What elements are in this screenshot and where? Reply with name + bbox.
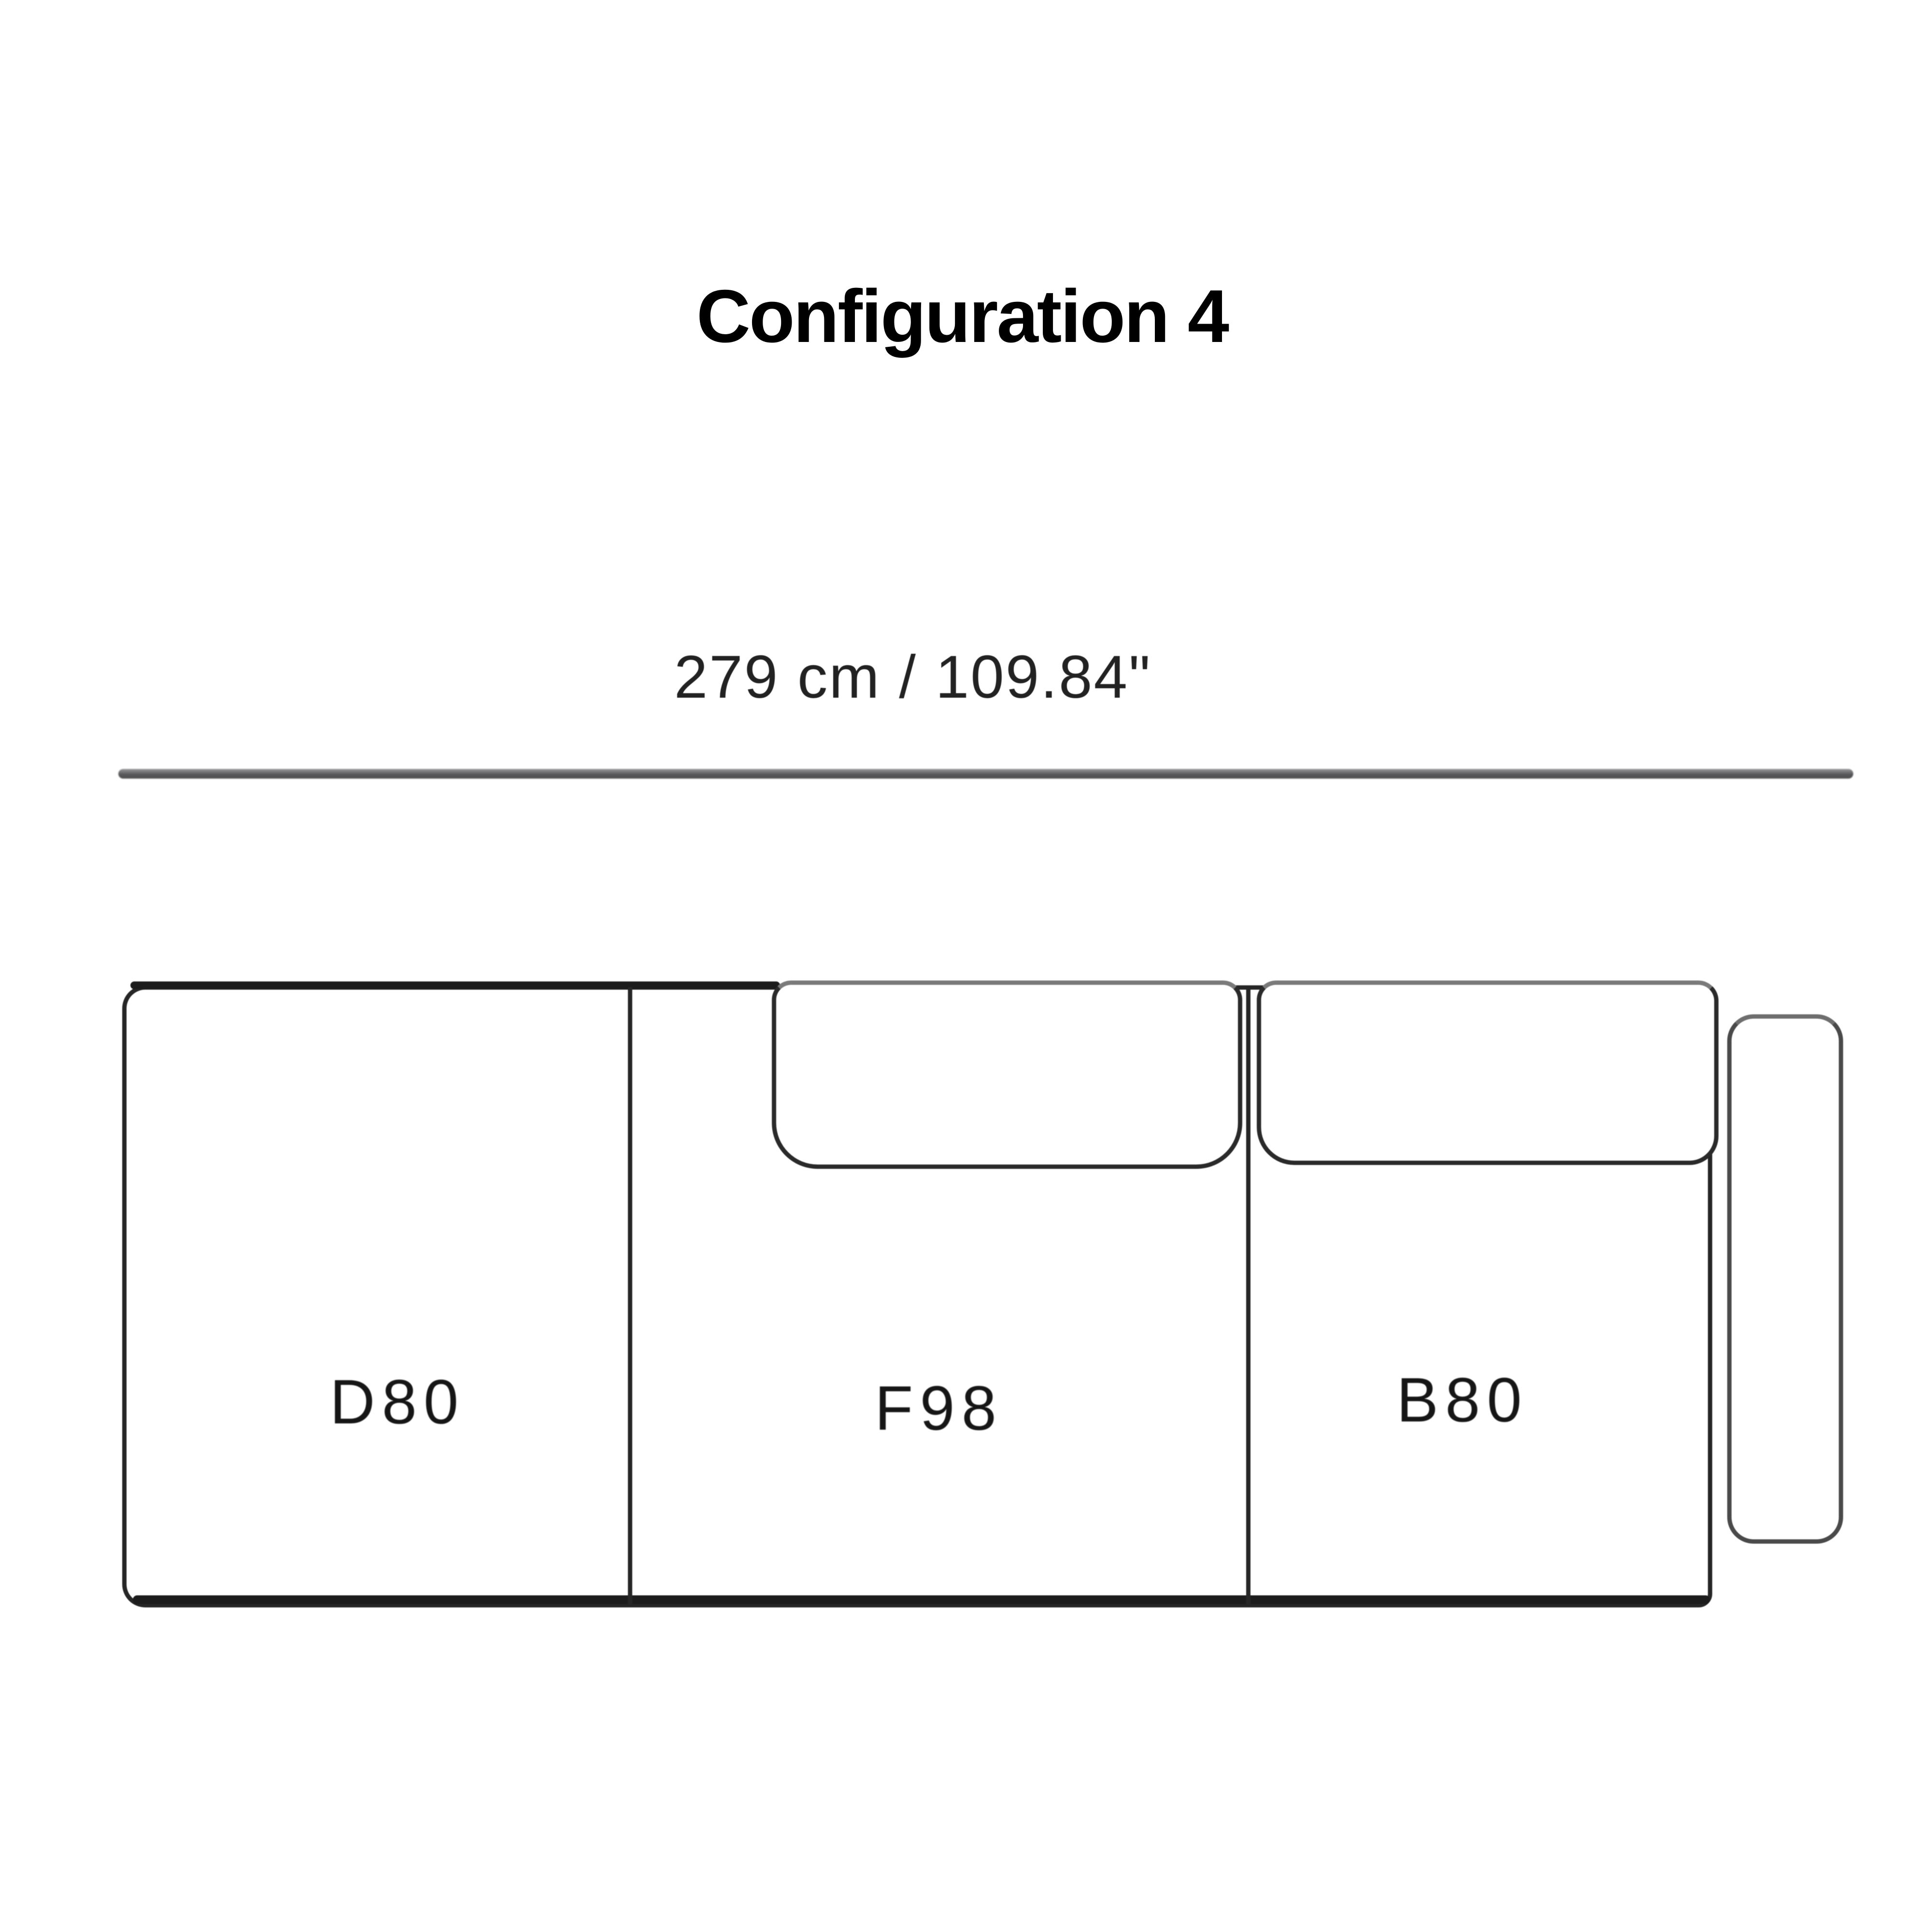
armrest-right bbox=[1727, 1014, 1843, 1544]
module-divider-1 bbox=[628, 987, 632, 1605]
module-label-b80: B80 bbox=[1396, 1364, 1528, 1436]
back-cushion-b80 bbox=[1257, 980, 1719, 1165]
sofa-base-edge bbox=[133, 1595, 1710, 1604]
sofa-diagram: D80 F98 B80 bbox=[0, 0, 1932, 1932]
module-label-d80: D80 bbox=[330, 1365, 465, 1438]
module-divider-2 bbox=[1246, 987, 1250, 1605]
back-cushion-f98 bbox=[772, 980, 1242, 1169]
sofa-back-edge bbox=[130, 981, 780, 989]
module-label-f98: F98 bbox=[875, 1372, 1003, 1444]
diagram-page: Configuration 4 279 cm / 109.84" D80 F98… bbox=[0, 0, 1932, 1932]
